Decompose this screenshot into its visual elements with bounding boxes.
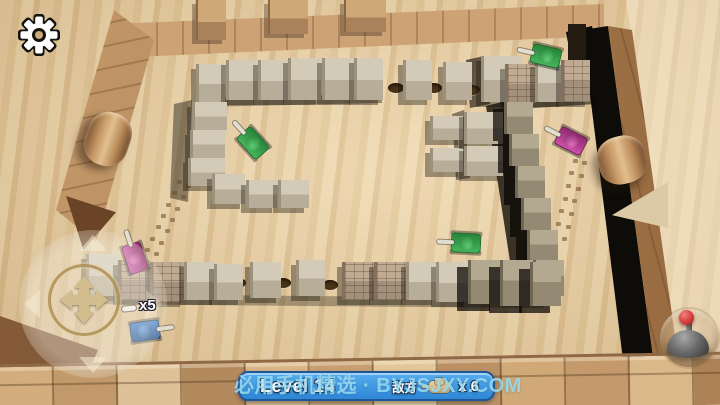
- enemy-count: x 6: [458, 378, 479, 395]
- dpad-up-arrow: [79, 235, 107, 251]
- enemy-label: 敌方: [392, 377, 417, 396]
- player-lives-count: x5: [139, 297, 156, 314]
- enemy-tank-icon: [422, 378, 452, 394]
- gear-icon: [16, 12, 62, 58]
- dpad-left-arrow: [24, 290, 40, 318]
- game-screen: x5 Level 14 敌方 x 6 必用手机精选 · BYJSJXY.COM: [0, 0, 720, 405]
- hud-layer: x5 Level 14 敌方 x 6 必用手机精选 · BYJSJXY.COM: [0, 0, 720, 405]
- four-way-arrows-icon: [60, 276, 108, 324]
- joystick-red-ball-icon: [679, 310, 694, 325]
- dpad-down-arrow: [79, 357, 107, 373]
- fire-joystick[interactable]: [660, 309, 718, 367]
- level-bar: Level 14 敌方 x 6: [238, 371, 495, 401]
- level-label: Level 14: [260, 376, 335, 397]
- joystick-base: [667, 330, 709, 358]
- settings-button[interactable]: [16, 12, 62, 58]
